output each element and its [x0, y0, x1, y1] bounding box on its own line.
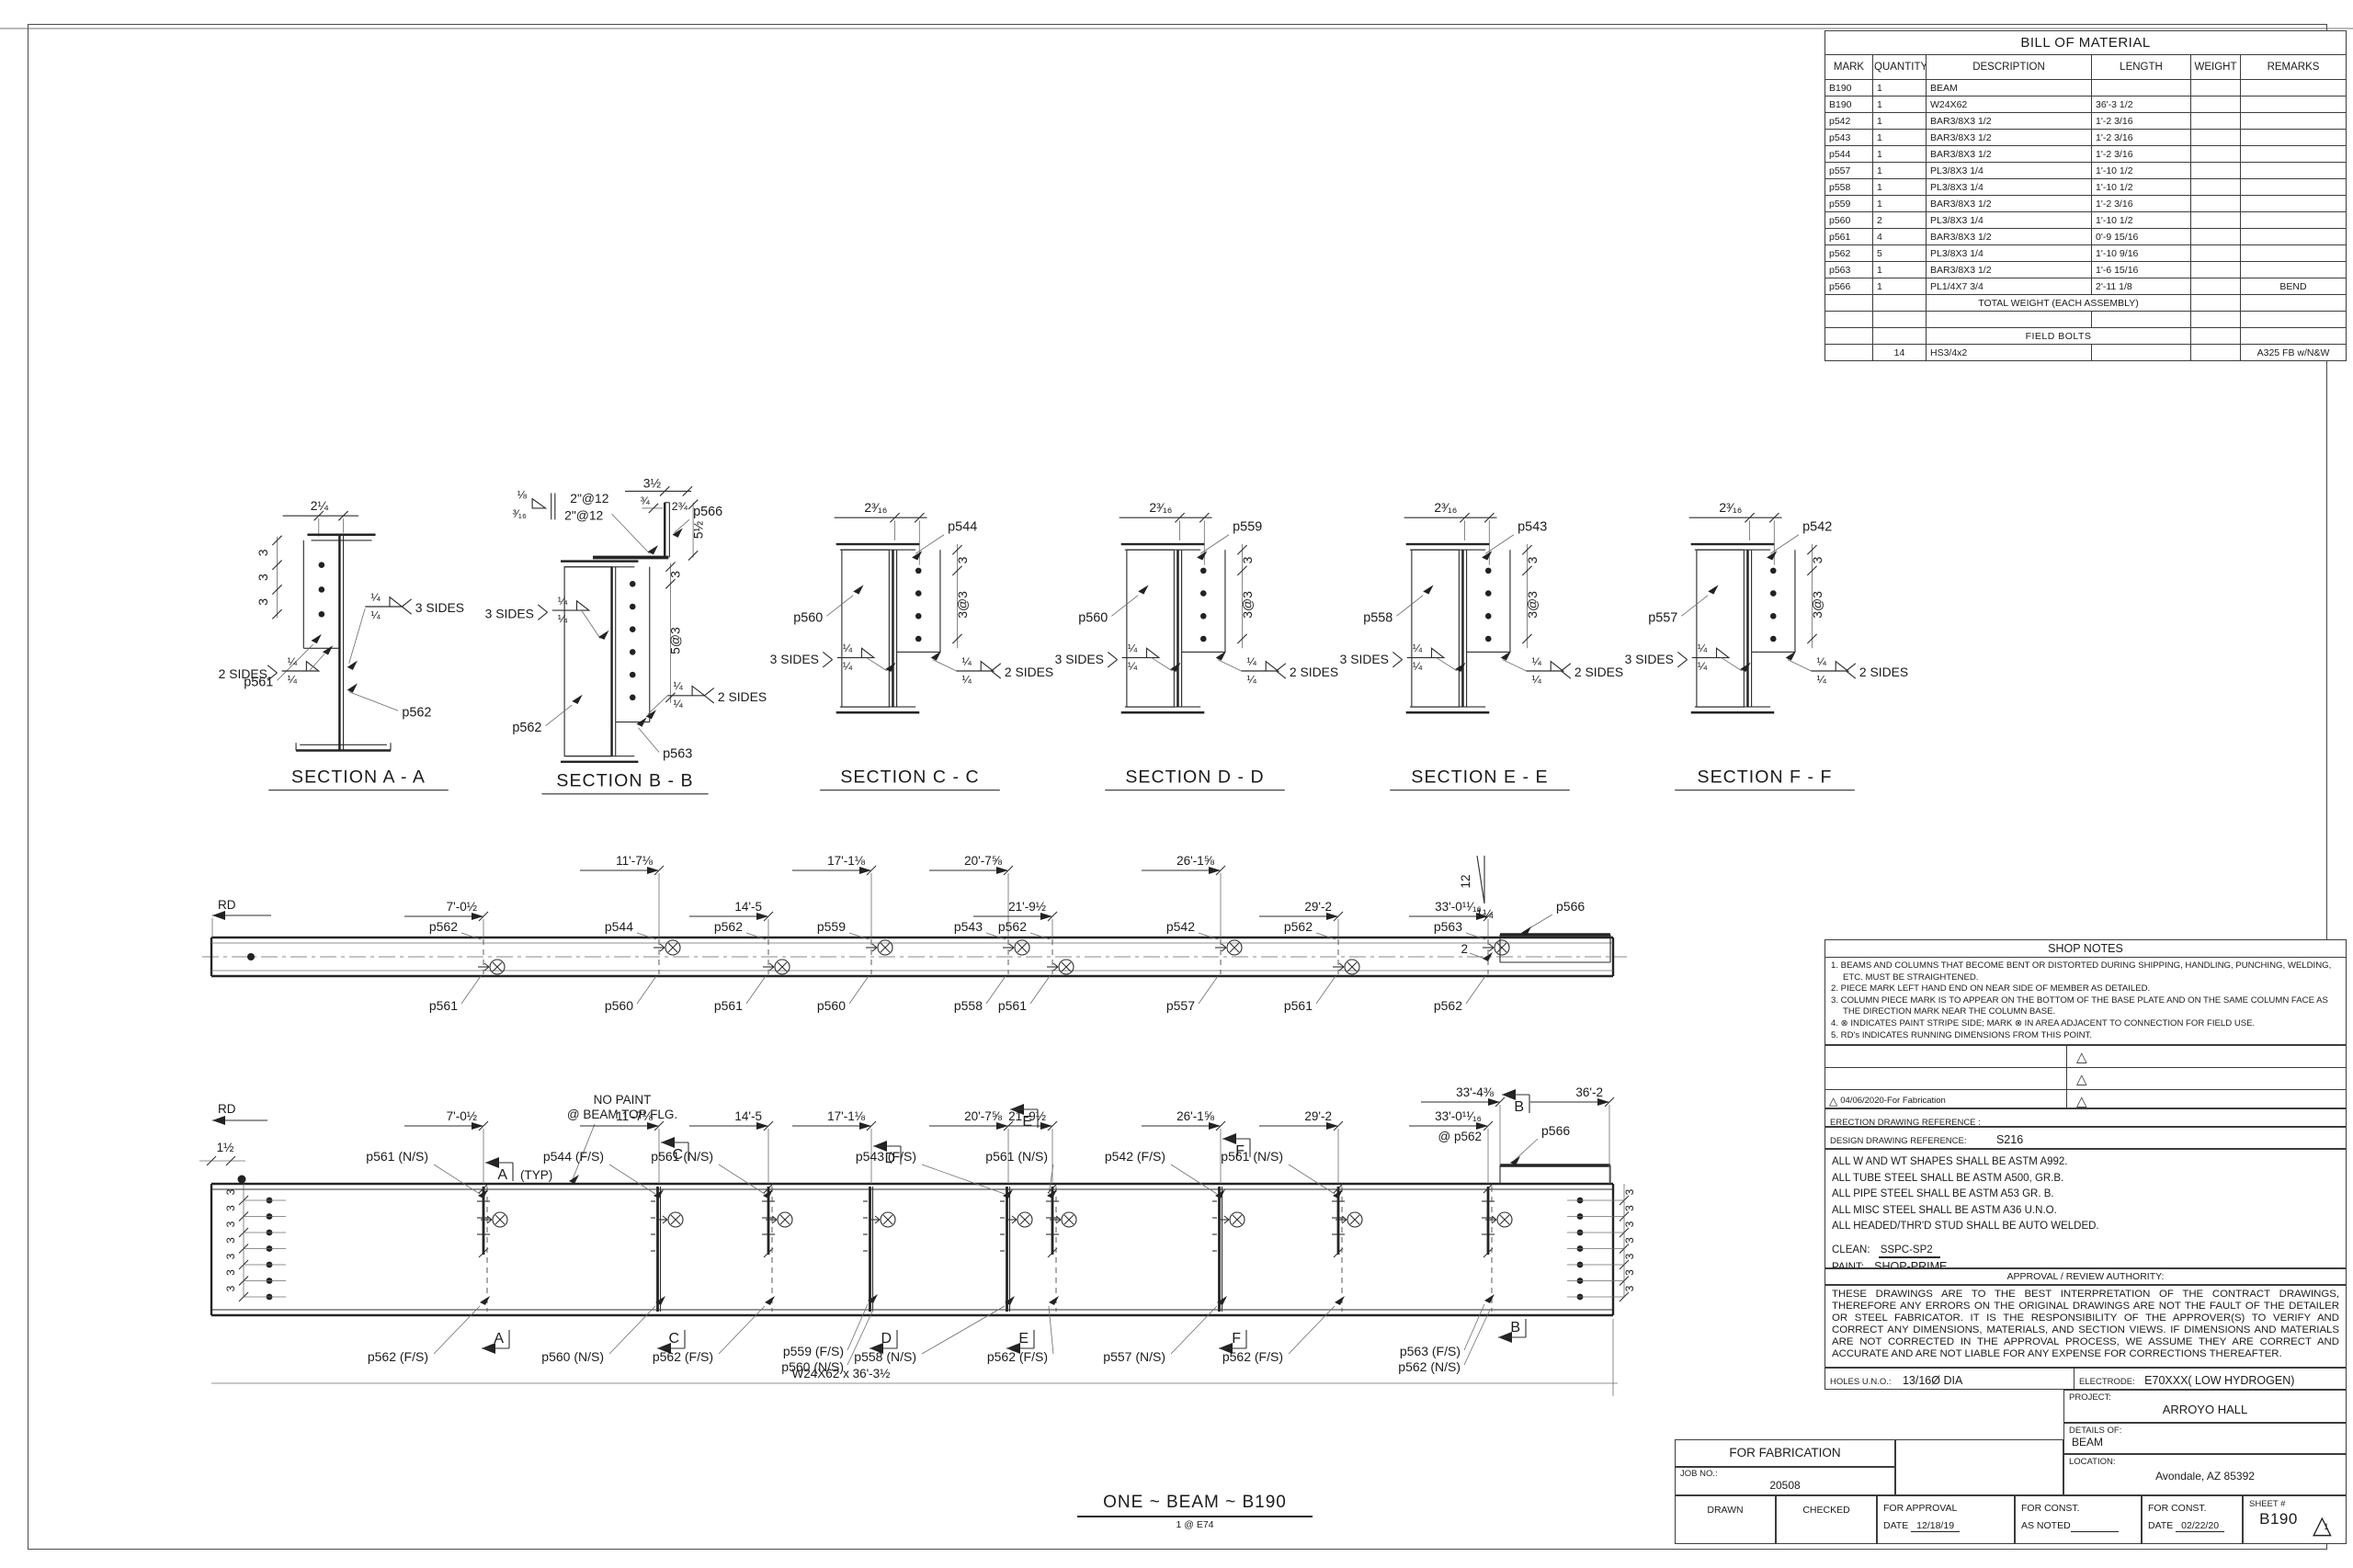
svg-text:F: F	[1232, 1331, 1241, 1346]
svg-text:¼: ¼	[962, 655, 972, 668]
svg-text:14'-5: 14'-5	[734, 1109, 762, 1123]
svg-text:3@3: 3@3	[1240, 591, 1255, 619]
svg-text:p559 (F/S): p559 (F/S)	[783, 1344, 844, 1358]
svg-text:¼: ¼	[558, 595, 568, 608]
table-row: B1901W24X6236'-3 1/2	[1825, 97, 2347, 113]
svg-text:p562: p562	[512, 721, 541, 735]
beam-top-plan-view: RD7'-0½p562p56111'-7⅛p544p56014'-5p562p5…	[198, 850, 1650, 1034]
svg-text:¼: ¼	[1128, 642, 1138, 654]
svg-text:¼: ¼	[1698, 642, 1708, 654]
for-approval-label: FOR APPROVAL	[1883, 1503, 2008, 1514]
svg-text:5½: 5½	[690, 521, 705, 540]
svg-text:3: 3	[955, 556, 970, 563]
table-row: p5421BAR3/8X3 1/21'-2 3/16	[1825, 113, 2347, 130]
svg-text:3: 3	[224, 1221, 237, 1227]
svg-text:2 SIDES: 2 SIDES	[1574, 665, 1623, 679]
svg-text:B: B	[1510, 1320, 1520, 1335]
shop-notes-list: 1. BEAMS AND COLUMNS THAT BECOME BENT OR…	[1825, 958, 2346, 1041]
svg-text:p563 (F/S): p563 (F/S)	[1400, 1344, 1461, 1358]
svg-text:¼: ¼	[1817, 655, 1827, 668]
svg-text:¼: ¼	[370, 608, 381, 621]
section-detail-b: 3½¾2¾5½35@3⅛³⁄₁₆2"@122"@123 SIDES¼¼p566p…	[478, 478, 772, 800]
caption-subtitle: 1 @ E74	[993, 1519, 1397, 1530]
svg-text:3: 3	[668, 571, 683, 578]
revision-row: △	[1825, 1068, 2346, 1090]
svg-text:2 SIDES: 2 SIDES	[219, 666, 267, 681]
location-label: LOCATION:	[2069, 1457, 2341, 1467]
job-no-cell: JOB NO.: 20508	[1675, 1467, 1895, 1495]
table-row: p5431BAR3/8X3 1/21'-2 3/16	[1825, 130, 2347, 146]
svg-text:29'-2: 29'-2	[1304, 900, 1332, 914]
svg-text:3 SIDES: 3 SIDES	[1340, 652, 1389, 666]
material-notes-box: ALL W AND WT SHAPES SHALL BE ASTM A992.A…	[1824, 1149, 2347, 1268]
svg-text:2 SIDES: 2 SIDES	[1005, 665, 1053, 679]
svg-text:3: 3	[1623, 1237, 1636, 1244]
svg-text:33'-0¹¹⁄₁₆: 33'-0¹¹⁄₁₆	[1435, 900, 1482, 914]
blank-cell	[1895, 1439, 2063, 1495]
svg-text:p560: p560	[1078, 610, 1108, 625]
electrode-cell: ELECTRODE: E70XXX( LOW HYDROGEN)	[2075, 1369, 2346, 1389]
svg-text:3: 3	[1623, 1285, 1636, 1291]
bom-header-row: MARKQUANTITYDESCRIPTIONLENGTHWEIGHTREMAR…	[1825, 55, 2347, 80]
bom-col-header: WEIGHT	[2191, 55, 2241, 80]
table-row: FIELD BOLTS	[1825, 328, 2347, 345]
svg-text:3: 3	[1525, 556, 1540, 563]
table-row: p5631BAR3/8X3 1/21'-6 15/16	[1825, 262, 2347, 278]
table-row: p5661PL1/4X7 3/42'-11 1/8BEND	[1825, 278, 2347, 295]
svg-text:(TYP): (TYP)	[520, 1168, 552, 1182]
shop-note: 1. BEAMS AND COLUMNS THAT BECOME BENT OR…	[1831, 960, 2340, 983]
svg-text:14'-5: 14'-5	[734, 900, 762, 914]
svg-text:A: A	[494, 1331, 504, 1346]
holes-cell: HOLES U.N.O.: 13/16Ø DIA	[1825, 1369, 2075, 1389]
svg-text:21'-9½: 21'-9½	[1008, 900, 1046, 914]
svg-text:3: 3	[1810, 556, 1824, 563]
svg-text:3 SIDES: 3 SIDES	[770, 652, 819, 666]
svg-text:7'-0½: 7'-0½	[447, 1109, 477, 1123]
svg-text:p562: p562	[998, 919, 1027, 934]
for-const1-label: FOR CONST.	[2021, 1503, 2135, 1514]
clean-value: SSPC-SP2	[1879, 1244, 1940, 1258]
beam-elevation-view: p566RD1½W24X62 x 36'-3½NO PAINT@ BEAM TO…	[198, 1089, 1650, 1406]
svg-text:3: 3	[224, 1188, 237, 1195]
svg-text:p557: p557	[1166, 998, 1195, 1013]
svg-text:2 SIDES: 2 SIDES	[1859, 665, 1908, 679]
clean-row: CLEAN: SSPC-SP2	[1832, 1244, 2339, 1256]
sheet-number-cell: SHEET # B190 △1	[2243, 1495, 2347, 1544]
svg-text:p562: p562	[714, 919, 743, 934]
for-const-noted-cell: FOR CONST. AS NOTED	[2015, 1495, 2142, 1544]
svg-text:p542: p542	[1166, 919, 1195, 934]
table-row	[1825, 312, 2347, 328]
svg-text:¼: ¼	[1532, 655, 1542, 668]
svg-text:p561: p561	[1284, 998, 1313, 1013]
table-row: p5602PL3/8X3 1/41'-10 1/2	[1825, 212, 2347, 229]
holes-value: 13/16Ø DIA	[1903, 1374, 1962, 1387]
checked-cell: CHECKED	[1776, 1495, 1877, 1544]
svg-text:2 SIDES: 2 SIDES	[718, 689, 767, 704]
svg-text:¼: ¼	[288, 655, 298, 668]
bom-col-header: MARK	[1825, 55, 1873, 80]
shop-note: 4. ⊗ INDICATES PAINT STRIPE SIDE; MARK ⊗…	[1831, 1018, 2340, 1030]
section-drawing: 2¼333p561p5622 SIDES¼¼¼¼3 SIDESSECTION A…	[211, 478, 506, 800]
section-drawing: 2³⁄₁₆33@3p542p5573 SIDES¼¼¼¼2 SIDESSECTI…	[1618, 478, 1912, 800]
svg-text:p561: p561	[429, 998, 458, 1013]
const-date-value: 02/22/20	[2176, 1520, 2224, 1532]
drawing-caption: ONE ~ BEAM ~ B190 1 @ E74	[993, 1493, 1397, 1530]
svg-text:RD: RD	[218, 898, 236, 912]
svg-text:17'-1⅛: 17'-1⅛	[827, 854, 866, 868]
svg-text:p544: p544	[948, 520, 977, 535]
svg-text:SECTION F - F: SECTION F - F	[1698, 767, 1833, 787]
svg-text:RD: RD	[218, 1102, 236, 1116]
section-drawing: 2³⁄₁₆33@3p543p5583 SIDES¼¼¼¼2 SIDESSECTI…	[1333, 478, 1627, 800]
svg-text:3@3: 3@3	[1525, 591, 1540, 619]
details-label: DETAILS OF:	[2069, 1426, 2341, 1436]
svg-text:17'-1⅛: 17'-1⅛	[827, 1109, 866, 1123]
svg-text:p563: p563	[1434, 919, 1462, 934]
svg-text:2: 2	[1461, 942, 1468, 956]
details-of-cell: DETAILS OF: BEAM	[2063, 1423, 2347, 1454]
svg-text:3: 3	[1623, 1205, 1636, 1211]
svg-text:p543 (F/S): p543 (F/S)	[856, 1149, 916, 1164]
svg-text:p562 (F/S): p562 (F/S)	[653, 1349, 713, 1364]
shop-note: 2. PIECE MARK LEFT HAND END ON NEAR SIDE…	[1831, 983, 2340, 995]
svg-text:3: 3	[224, 1253, 237, 1259]
svg-text:2 SIDES: 2 SIDES	[1290, 665, 1338, 679]
svg-text:p560: p560	[793, 610, 823, 625]
svg-text:p562 (F/S): p562 (F/S)	[368, 1349, 428, 1364]
svg-text:1¼: 1¼	[1476, 907, 1495, 921]
revision-triangle-icon: △1	[2313, 1512, 2340, 1538]
svg-text:SECTION E - E: SECTION E - E	[1411, 767, 1548, 787]
svg-text:3: 3	[224, 1269, 237, 1276]
svg-text:3: 3	[224, 1285, 237, 1291]
svg-text:¼: ¼	[673, 680, 683, 693]
svg-text:p544: p544	[605, 919, 633, 934]
svg-text:p566: p566	[1556, 899, 1585, 914]
svg-text:p561 (N/S): p561 (N/S)	[985, 1149, 1048, 1164]
svg-text:¼: ¼	[1413, 660, 1423, 673]
svg-text:2³⁄₁₆: 2³⁄₁₆	[1149, 500, 1172, 515]
svg-text:p561 (N/S): p561 (N/S)	[651, 1149, 713, 1164]
const-date-row: DATE 02/22/20	[2148, 1520, 2236, 1531]
section-detail-e: 2³⁄₁₆33@3p543p5583 SIDES¼¼¼¼2 SIDESSECTI…	[1333, 478, 1627, 800]
electrode-value: E70XXX( LOW HYDROGEN)	[2144, 1374, 2294, 1387]
svg-text:2³⁄₁₆: 2³⁄₁₆	[1719, 500, 1742, 515]
svg-text:A: A	[497, 1167, 507, 1183]
svg-text:p559: p559	[1233, 520, 1262, 535]
svg-text:3½: 3½	[643, 475, 662, 490]
holes-electrode-row: HOLES U.N.O.: 13/16Ø DIA ELECTRODE: E70X…	[1824, 1368, 2347, 1390]
svg-text:26'-1⅝: 26'-1⅝	[1176, 854, 1215, 868]
svg-text:¼: ¼	[962, 673, 972, 686]
svg-text:20'-7⅝: 20'-7⅝	[964, 1109, 1003, 1123]
svg-text:¼: ¼	[843, 660, 853, 673]
svg-text:p560 (N/S): p560 (N/S)	[541, 1349, 604, 1364]
location-cell: LOCATION: Avondale, AZ 85392	[2063, 1454, 2347, 1495]
for-const-date-cell: FOR CONST. DATE 02/22/20	[2142, 1495, 2243, 1544]
caption-title: ONE ~ BEAM ~ B190	[1077, 1493, 1313, 1517]
svg-text:p561 (N/S): p561 (N/S)	[1221, 1149, 1283, 1164]
svg-text:p543: p543	[1518, 520, 1547, 535]
svg-text:p560: p560	[605, 998, 633, 1013]
clean-label: CLEAN:	[1832, 1244, 1870, 1256]
svg-text:p542 (F/S): p542 (F/S)	[1105, 1149, 1165, 1164]
bom-col-header: REMARKS	[2241, 55, 2347, 80]
as-noted-row: AS NOTED	[2021, 1520, 2135, 1531]
svg-text:¼: ¼	[370, 591, 381, 604]
svg-text:¼: ¼	[558, 613, 568, 626]
svg-text:@ p562: @ p562	[1438, 1130, 1483, 1143]
svg-text:p560: p560	[817, 998, 846, 1013]
section-drawing: 2³⁄₁₆33@3p559p5603 SIDES¼¼¼¼2 SIDESSECTI…	[1048, 478, 1342, 800]
svg-text:B: B	[1514, 1099, 1524, 1115]
svg-text:p561 (N/S): p561 (N/S)	[366, 1149, 428, 1164]
svg-text:5@3: 5@3	[668, 627, 683, 654]
svg-text:p562 (F/S): p562 (F/S)	[1222, 1349, 1283, 1364]
material-note: ALL MISC STEEL SHALL BE ASTM A36 U.N.O.	[1832, 1203, 2339, 1220]
svg-text:p544 (F/S): p544 (F/S)	[543, 1149, 604, 1164]
shop-drawing-page: { "colors":{"line":"#2b2b2b","border":"#…	[0, 0, 2353, 1568]
sheet-label: SHEET #	[2249, 1499, 2340, 1509]
bill-of-material: BILL OF MATERIAL MARKQUANTITYDESCRIPTION…	[1824, 30, 2347, 361]
svg-text:p560 (N/S): p560 (N/S)	[781, 1359, 844, 1374]
bom-col-header: DESCRIPTION	[1927, 55, 2092, 80]
svg-text:33'-4⅜: 33'-4⅜	[1456, 1085, 1495, 1099]
svg-text:SECTION D - D: SECTION D - D	[1125, 767, 1264, 787]
svg-text:2¾: 2¾	[672, 500, 688, 513]
for-const2-label: FOR CONST.	[2148, 1503, 2236, 1514]
svg-text:p558: p558	[954, 998, 983, 1013]
svg-text:2³⁄₁₆: 2³⁄₁₆	[1434, 500, 1457, 515]
svg-text:p558 (N/S): p558 (N/S)	[854, 1349, 916, 1364]
holes-label: HOLES U.N.O.:	[1830, 1377, 1892, 1387]
erection-ref-row: ERECTION DRAWING REFERENCE :	[1824, 1108, 2347, 1127]
project-label: PROJECT:	[2069, 1392, 2341, 1403]
sheet-value: B190	[2249, 1510, 2308, 1528]
approval-header: APPROVAL / REVIEW AUTHORITY:	[1824, 1268, 2347, 1285]
svg-text:¼: ¼	[288, 673, 298, 686]
svg-text:2"@12: 2"@12	[570, 491, 608, 506]
svg-text:C: C	[668, 1331, 679, 1346]
section-detail-a: 2¼333p561p5622 SIDES¼¼¼¼3 SIDESSECTION A…	[211, 478, 506, 800]
shop-notes-title: SHOP NOTES	[1825, 940, 2346, 958]
svg-text:¼: ¼	[843, 642, 853, 654]
svg-text:⅛: ⅛	[517, 489, 528, 502]
table-row: p5581PL3/8X3 1/41'-10 1/2	[1825, 179, 2347, 196]
svg-text:p561: p561	[714, 998, 743, 1013]
svg-text:3: 3	[1623, 1269, 1636, 1276]
svg-text:¼: ¼	[1247, 655, 1257, 668]
section-detail-c: 2³⁄₁₆33@3p544p5603 SIDES¼¼¼¼2 SIDESSECTI…	[763, 478, 1057, 800]
svg-text:¼: ¼	[1532, 673, 1542, 686]
material-note: ALL TUBE STEEL SHALL BE ASTM A500, GR.B.	[1832, 1171, 2339, 1187]
approval-date-label: DATE	[1883, 1520, 1908, 1531]
for-approval-cell: FOR APPROVAL DATE 12/18/19	[1877, 1495, 2015, 1544]
electrode-label: ELECTRODE:	[2079, 1377, 2135, 1387]
material-note: ALL PIPE STEEL SHALL BE ASTM A53 GR. B.	[1832, 1187, 2339, 1203]
revision-row: △	[1825, 1046, 2346, 1068]
svg-text:p566: p566	[1541, 1123, 1570, 1138]
svg-text:p562: p562	[402, 705, 431, 720]
material-note: ALL W AND WT SHAPES SHALL BE ASTM A992.	[1832, 1154, 2339, 1171]
bom-col-header: LENGTH	[2092, 55, 2191, 80]
svg-text:¼: ¼	[1247, 673, 1257, 686]
bom-rows: B1901BEAMB1901W24X6236'-3 1/2p5421BAR3/8…	[1825, 80, 2347, 361]
shop-notes-box: SHOP NOTES 1. BEAMS AND COLUMNS THAT BEC…	[1824, 939, 2347, 1045]
svg-text:p562 (N/S): p562 (N/S)	[1398, 1359, 1461, 1374]
project-cell: PROJECT: ARROYO HALL	[2063, 1390, 2347, 1423]
svg-text:2"@12: 2"@12	[564, 507, 603, 522]
details-value: BEAM	[2069, 1436, 2341, 1449]
for-fabrication-cell: FOR FABRICATION	[1675, 1439, 1895, 1467]
table-row: p5625PL3/8X3 1/41'-10 9/16	[1825, 245, 2347, 262]
table-row: p5591BAR3/8X3 1/21'-2 3/16	[1825, 196, 2347, 212]
svg-text:3: 3	[1623, 1253, 1636, 1259]
svg-text:p562: p562	[1434, 998, 1462, 1013]
svg-text:20'-7⅝: 20'-7⅝	[964, 854, 1003, 868]
section-drawing: 3½¾2¾5½35@3⅛³⁄₁₆2"@122"@123 SIDES¼¼p566p…	[478, 478, 772, 800]
svg-text:¼: ¼	[1817, 673, 1827, 686]
job-label: JOB NO.:	[1680, 1469, 1890, 1479]
as-noted-label: AS NOTED	[2021, 1520, 2071, 1531]
table-row: 14HS3/4x2A325 FB w/N&W	[1825, 345, 2347, 361]
svg-text:3: 3	[256, 598, 270, 606]
svg-text:3 SIDES: 3 SIDES	[1055, 652, 1104, 666]
material-note: ALL HEADED/THR'D STUD SHALL BE AUTO WELD…	[1832, 1219, 2339, 1235]
project-value: ARROYO HALL	[2069, 1403, 2341, 1416]
svg-text:3: 3	[256, 574, 270, 581]
svg-text:p557 (N/S): p557 (N/S)	[1103, 1349, 1165, 1364]
svg-text:p561: p561	[998, 998, 1027, 1013]
svg-text:12: 12	[1459, 874, 1472, 888]
svg-text:³⁄₁₆: ³⁄₁₆	[513, 507, 527, 520]
svg-text:3 SIDES: 3 SIDES	[1625, 652, 1674, 666]
revision-number: 1	[2313, 1522, 2340, 1531]
svg-text:SECTION A - A: SECTION A - A	[291, 767, 426, 787]
svg-text:p563: p563	[663, 747, 692, 762]
svg-text:7'-0½: 7'-0½	[447, 900, 477, 914]
svg-text:¼: ¼	[1413, 642, 1423, 654]
svg-text:p562 (F/S): p562 (F/S)	[987, 1349, 1048, 1364]
shop-note: 3. COLUMN PIECE MARK IS TO APPEAR ON THE…	[1831, 995, 2340, 1018]
revision-table: △△△04/06/2020-For Fabrication△	[1824, 1045, 2347, 1108]
section-detail-d: 2³⁄₁₆33@3p559p5603 SIDES¼¼¼¼2 SIDESSECTI…	[1048, 478, 1342, 800]
job-value: 20508	[1680, 1479, 1890, 1492]
svg-text:SECTION C - C: SECTION C - C	[840, 767, 979, 787]
svg-text:p562: p562	[429, 919, 458, 934]
table-row: B1901BEAM	[1825, 80, 2347, 97]
svg-text:3 SIDES: 3 SIDES	[485, 606, 534, 620]
svg-text:p562: p562	[1284, 919, 1313, 934]
table-row: p5614BAR3/8X3 1/20'-9 15/16	[1825, 229, 2347, 245]
svg-text:p557: p557	[1648, 610, 1677, 625]
svg-text:3: 3	[1240, 556, 1255, 563]
svg-text:p542: p542	[1802, 520, 1832, 535]
material-notes-list: ALL W AND WT SHAPES SHALL BE ASTM A992.A…	[1832, 1154, 2339, 1235]
svg-text:¼: ¼	[1128, 660, 1138, 673]
section-drawing: 2³⁄₁₆33@3p544p5603 SIDES¼¼¼¼2 SIDESSECTI…	[763, 478, 1057, 800]
svg-text:SECTION B - B: SECTION B - B	[556, 771, 693, 791]
approval-paragraph: THESE DRAWINGS ARE TO THE BEST INTERPRET…	[1824, 1285, 2347, 1368]
design-ref-value: S216	[1996, 1133, 2023, 1146]
svg-text:26'-1⅝: 26'-1⅝	[1176, 1109, 1215, 1123]
as-noted-blank	[2071, 1520, 2119, 1532]
svg-text:3@3: 3@3	[1810, 591, 1824, 619]
svg-text:3: 3	[1623, 1188, 1636, 1195]
approval-date-row: DATE 12/18/19	[1883, 1520, 2008, 1531]
revision-triangle-icon: △	[2067, 1093, 2346, 1109]
svg-text:NO PAINT: NO PAINT	[594, 1093, 652, 1107]
svg-text:¼: ¼	[673, 698, 683, 710]
svg-text:p566: p566	[693, 505, 722, 519]
svg-text:2¼: 2¼	[311, 498, 329, 513]
svg-text:21'-9½: 21'-9½	[1008, 1109, 1046, 1123]
const-date-label: DATE	[2148, 1520, 2173, 1531]
svg-text:D: D	[881, 1331, 892, 1346]
svg-text:¼: ¼	[1698, 660, 1708, 673]
svg-text:p543: p543	[954, 919, 983, 934]
revision-triangle-icon: △	[2067, 1071, 2346, 1087]
svg-text:11'-7⅛: 11'-7⅛	[616, 854, 654, 868]
svg-text:1½: 1½	[217, 1141, 234, 1154]
revision-triangle-icon: △	[2067, 1049, 2346, 1065]
bom-title: BILL OF MATERIAL	[1824, 30, 2347, 54]
svg-text:11'-7⅛: 11'-7⅛	[616, 1109, 654, 1123]
location-value: Avondale, AZ 85392	[2069, 1470, 2341, 1483]
svg-text:3 SIDES: 3 SIDES	[415, 600, 464, 615]
table-row: p5571PL3/8X3 1/41'-10 1/2	[1825, 163, 2347, 179]
svg-text:p559: p559	[817, 919, 846, 934]
svg-text:36'-2: 36'-2	[1575, 1085, 1603, 1099]
drawn-cell: DRAWN	[1675, 1495, 1776, 1544]
svg-text:2³⁄₁₆: 2³⁄₁₆	[864, 500, 887, 515]
svg-text:3: 3	[1623, 1221, 1636, 1227]
svg-text:3: 3	[256, 549, 270, 556]
svg-text:33'-0¹¹⁄₁₆: 33'-0¹¹⁄₁₆	[1435, 1109, 1482, 1123]
svg-text:29'-2: 29'-2	[1304, 1109, 1332, 1123]
svg-text:3: 3	[224, 1205, 237, 1211]
bom-col-header: QUANTITY	[1873, 55, 1927, 80]
design-ref-row: DESIGN DRAWING REFERENCE: S216	[1824, 1127, 2347, 1149]
bom-table: MARKQUANTITYDESCRIPTIONLENGTHWEIGHTREMAR…	[1824, 54, 2347, 361]
section-detail-f: 2³⁄₁₆33@3p542p5573 SIDES¼¼¼¼2 SIDESSECTI…	[1618, 478, 1912, 800]
design-ref-label: DESIGN DRAWING REFERENCE:	[1830, 1136, 1967, 1146]
svg-text:p558: p558	[1363, 610, 1392, 625]
svg-text:3: 3	[224, 1237, 237, 1244]
approval-date-value: 12/18/19	[1911, 1520, 1960, 1532]
table-row: TOTAL WEIGHT (EACH ASSEMBLY)	[1825, 295, 2347, 312]
shop-note: 5. RD's INDICATES RUNNING DIMENSIONS FRO…	[1831, 1030, 2340, 1042]
svg-text:E: E	[1018, 1331, 1029, 1346]
svg-text:¾: ¾	[640, 494, 650, 507]
svg-text:3@3: 3@3	[955, 591, 970, 619]
table-row: p5441BAR3/8X3 1/21'-2 3/16	[1825, 146, 2347, 163]
